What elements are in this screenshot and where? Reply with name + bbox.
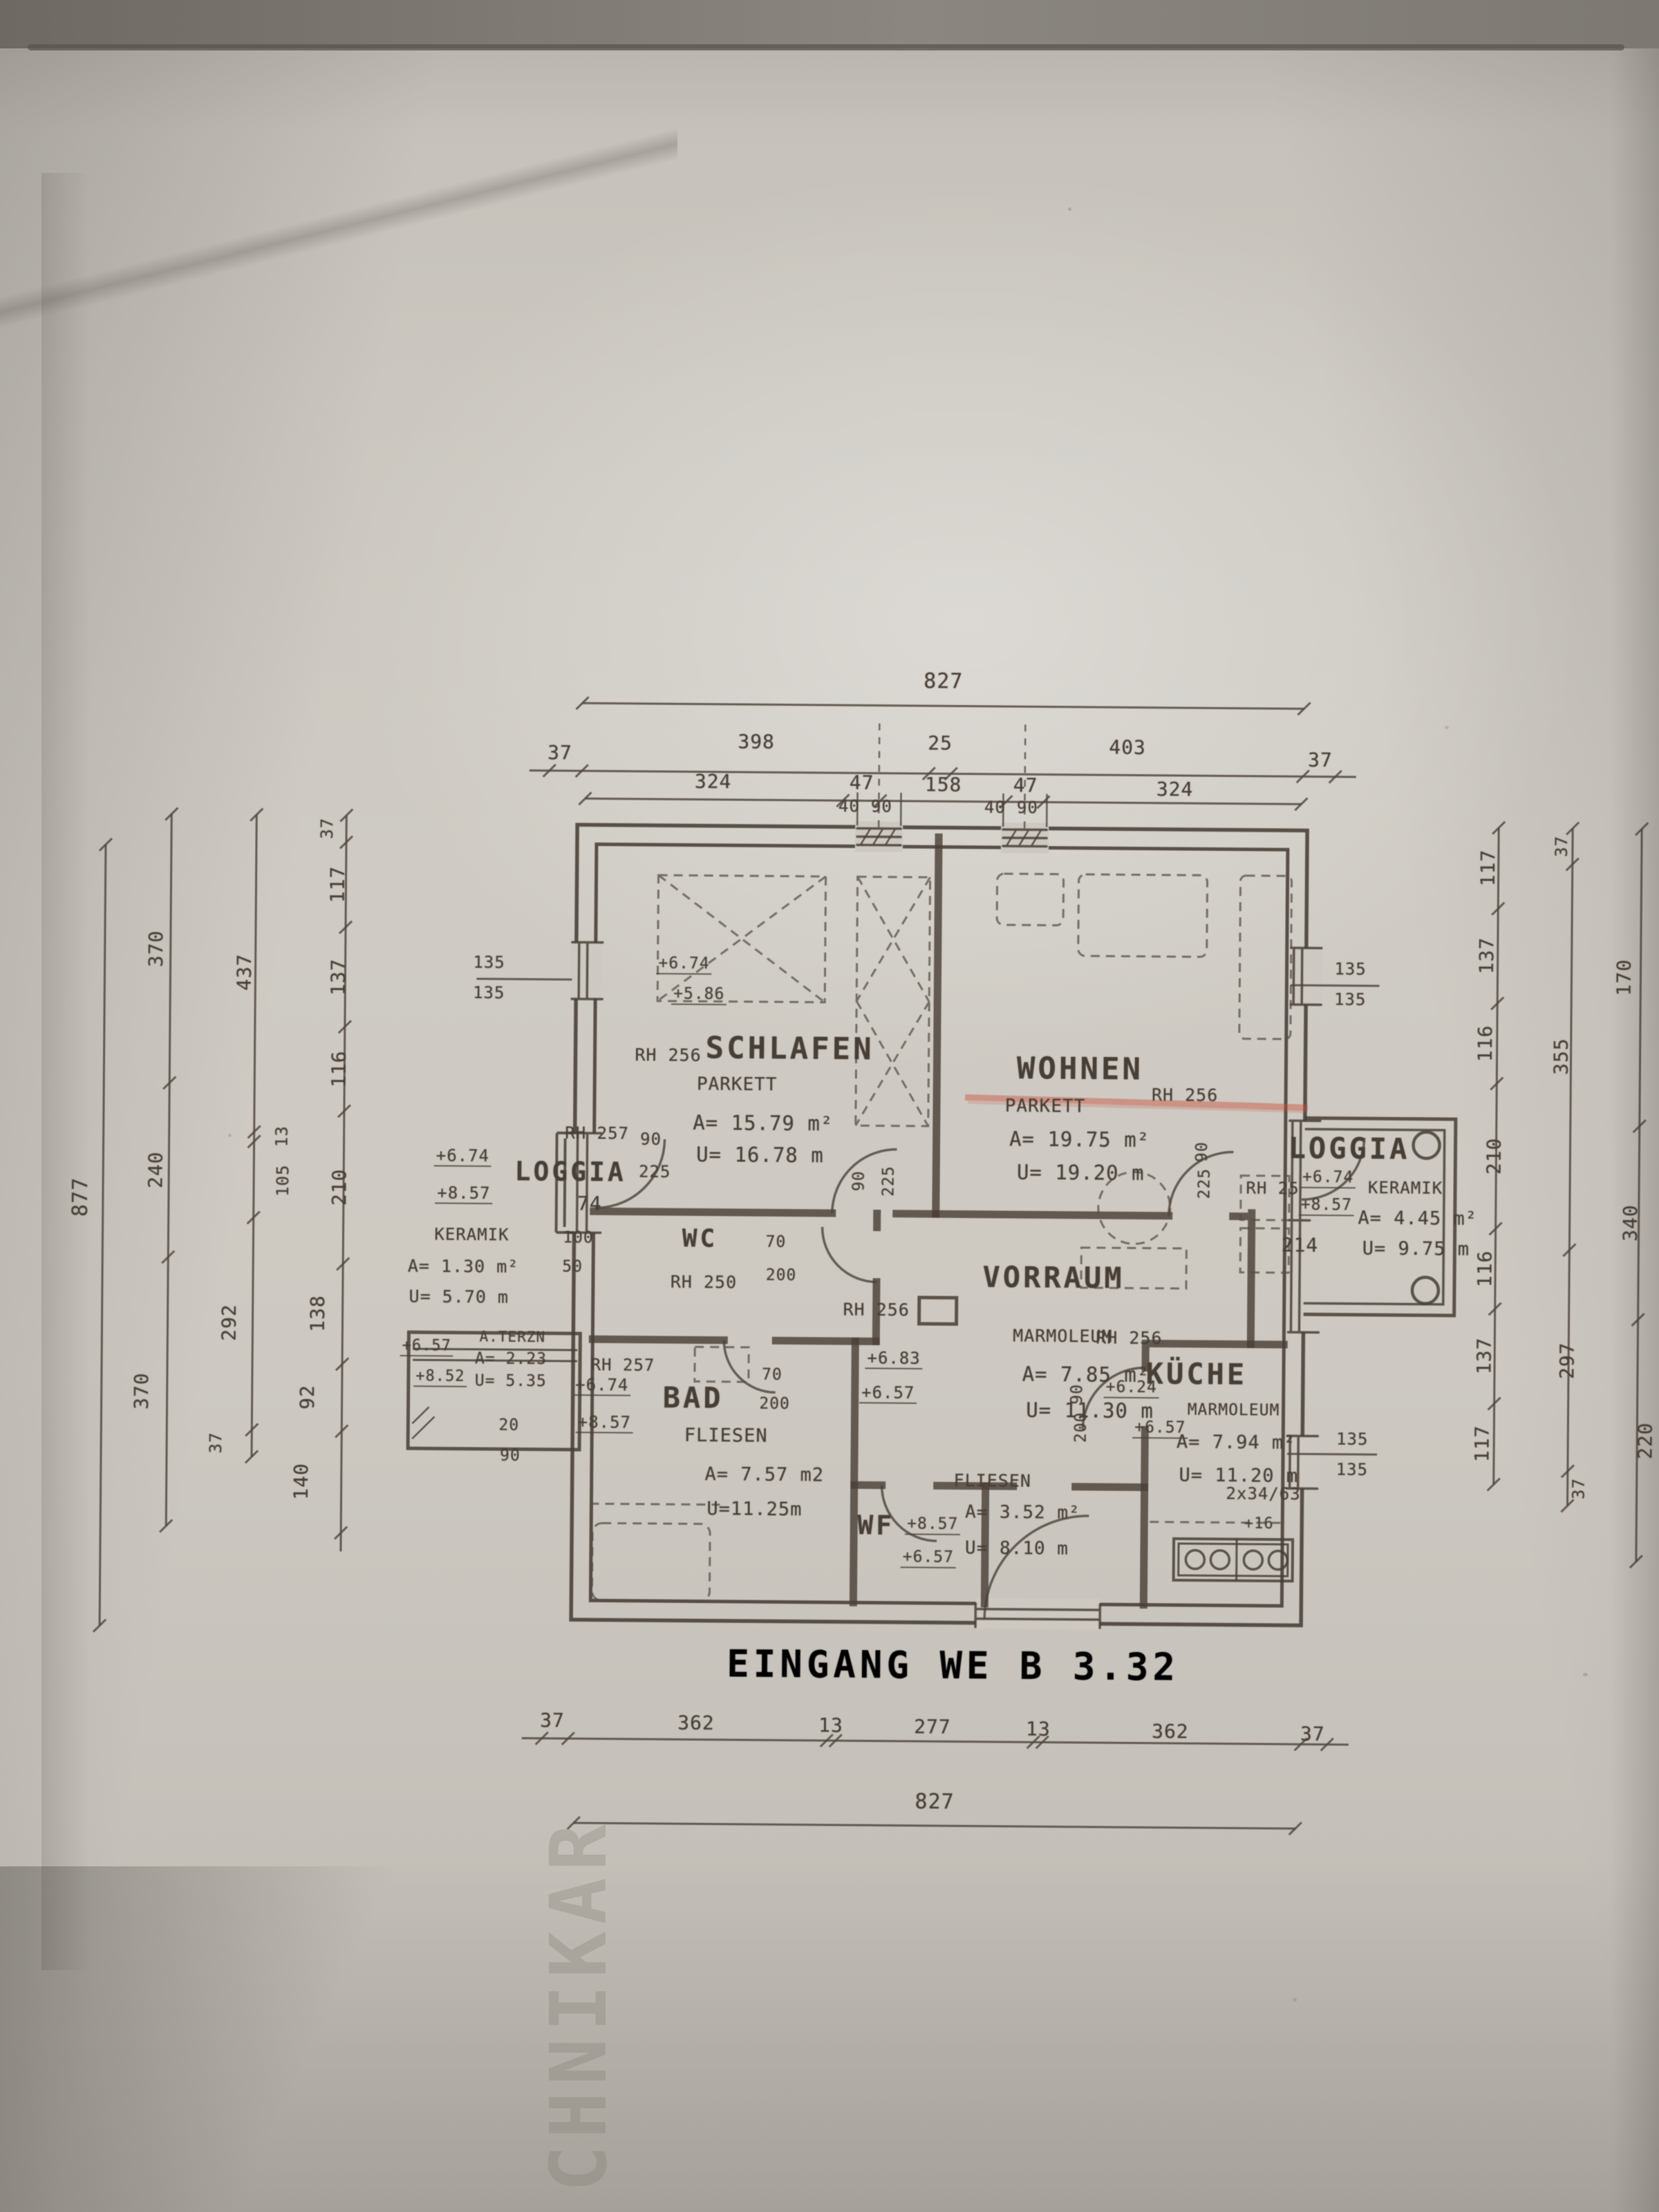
dim-right1-116b: 116: [1475, 1250, 1494, 1288]
loggia-right-width: 214: [1282, 1235, 1319, 1255]
dim-right3-340: 340: [1620, 1204, 1640, 1241]
ev-kueche-b: +6.57: [1132, 1420, 1188, 1439]
stove-burner: [1210, 1550, 1229, 1569]
dim-left3-292: 292: [219, 1304, 238, 1341]
dim-left4-37: 37: [319, 818, 335, 839]
schlafen-floor: PARKETT: [697, 1075, 778, 1094]
dim-left4-116: 116: [329, 1051, 348, 1088]
loggia-left-floor: KERAMIK: [434, 1226, 509, 1244]
schlafen-door-225: 225: [881, 1165, 897, 1197]
dim-left2-370b: 370: [132, 1372, 151, 1409]
entry-perimeter: U= 8.10 m: [965, 1539, 1069, 1558]
annex-90: 90: [500, 1448, 521, 1464]
loggia-left-door-90: 90: [640, 1131, 662, 1147]
wohnen-name: WOHNEN: [1017, 1053, 1143, 1085]
ev-vorraum-a: +6.83: [865, 1349, 922, 1369]
schlafen-door-90: 90: [852, 1170, 868, 1191]
dim-bot-362r: 362: [1152, 1722, 1189, 1741]
dim-bot-37l: 37: [540, 1711, 565, 1730]
ev-annex-b: +8.52: [413, 1369, 467, 1387]
dim-bot-362l: 362: [677, 1713, 715, 1732]
ev-entry-a: +8.57: [905, 1516, 960, 1535]
win-right-135b: 135: [1334, 991, 1367, 1008]
ev-loggia-right-a: +6.74: [1300, 1170, 1356, 1189]
dim-right3-220: 220: [1635, 1422, 1655, 1459]
win-left-135b: 135: [473, 984, 505, 1001]
dim-right1-117b: 117: [1472, 1425, 1492, 1463]
loggia-right-area: A= 4.45 m²: [1358, 1209, 1477, 1228]
wc-name: WC: [682, 1226, 718, 1251]
dim-top3-324r: 324: [1156, 780, 1194, 799]
floorplan-linework: [0, 0, 1659, 2212]
dim-bot-277: 277: [914, 1717, 951, 1736]
schlafen-perimeter: U= 16.78 m: [696, 1145, 824, 1165]
dim-right1-210: 210: [1484, 1138, 1503, 1175]
loggia-right-name: LOGGIA: [1288, 1134, 1410, 1163]
kueche-door-90: 90: [1069, 1384, 1085, 1405]
dim-right2-297: 297: [1557, 1342, 1577, 1379]
dim-right3-170: 170: [1614, 959, 1633, 996]
entry-area: A= 3.52 m²: [965, 1503, 1080, 1522]
dim-win1-40: 40: [838, 798, 860, 814]
dim-left4-210: 210: [330, 1169, 349, 1206]
annex-20: 20: [498, 1418, 519, 1434]
dim-top2-25: 25: [928, 733, 953, 753]
bad-rh: RH 257: [591, 1356, 655, 1374]
dim-top2-398: 398: [738, 732, 775, 751]
annex-name: A.TERZN: [480, 1330, 546, 1345]
dim-left1-877: 877: [71, 1177, 91, 1217]
ev-entry-b: +6.57: [901, 1549, 956, 1568]
wohnen-perimeter: U= 19.20 m: [1017, 1163, 1145, 1183]
win-kueche-135b: 135: [1336, 1461, 1369, 1478]
loggia-left-area: A= 1.30 m²: [408, 1257, 519, 1275]
ev-schlafen-b: +5.86: [671, 986, 727, 1006]
loggia-column: [1412, 1277, 1438, 1304]
bad-floor: FLIESEN: [684, 1426, 768, 1445]
win-right-135a: 135: [1334, 961, 1367, 977]
dim-left4-92: 92: [298, 1385, 317, 1409]
loggia-right-rh: RH 25: [1246, 1180, 1299, 1197]
bad-perimeter: U=11.25m: [706, 1499, 802, 1519]
kueche-window-note: 2x34/63: [1226, 1485, 1300, 1503]
dim-left3-13: 13: [274, 1125, 290, 1147]
ev-bad-b: +8.57: [576, 1414, 633, 1434]
dim-right2-355: 355: [1551, 1038, 1571, 1075]
loggia-left-rh: RH 257: [565, 1125, 629, 1142]
ev-kueche-a: +6.24: [1104, 1380, 1159, 1399]
dim-left4-138: 138: [308, 1295, 327, 1332]
wf-name: WF: [857, 1512, 894, 1538]
ev-loggia-left-a: +6.74: [434, 1147, 491, 1168]
scanned-floorplan-photo: 8273739825403373244715847324409040903736…: [0, 0, 1659, 2212]
entry-floor: FLIESEN: [953, 1472, 1031, 1490]
loggia-left-name: LOGGIA: [514, 1158, 626, 1185]
win-left-135a: 135: [473, 954, 505, 971]
dim-right1-137b: 137: [1474, 1338, 1494, 1375]
loggia-right-perimeter: U= 9.75 m: [1362, 1239, 1470, 1259]
wohnen-door-225: 225: [1197, 1168, 1212, 1199]
dim-bot-37r: 37: [1300, 1724, 1325, 1743]
stove-burner: [1244, 1550, 1262, 1569]
dim-right2-37b: 37: [1571, 1478, 1587, 1499]
kueche-perimeter: U= 11.20 m: [1179, 1465, 1298, 1485]
kueche-area: A= 7.94 m²: [1177, 1432, 1296, 1452]
wc-door-200: 200: [766, 1268, 797, 1284]
dim-left3-105: 105: [274, 1165, 291, 1197]
loggia-left-door-225: 225: [639, 1163, 671, 1180]
dim-right2-37a: 37: [1553, 836, 1570, 857]
loggia-column: [1413, 1132, 1439, 1159]
dim-right1-116a: 116: [1476, 1025, 1495, 1062]
kueche-counter-note: +16: [1244, 1517, 1274, 1532]
stove-burner: [1185, 1550, 1204, 1569]
entrance-title: EINGANG WE B 3.32: [727, 1642, 1179, 1689]
stove-burner: [1268, 1551, 1287, 1570]
wall-openings: [565, 819, 1324, 1631]
bad-door-70: 70: [762, 1367, 782, 1383]
dim-bot-13r: 13: [1026, 1719, 1051, 1738]
dim-top3-47r: 47: [1013, 776, 1038, 795]
dim-top3-158: 158: [925, 775, 962, 794]
dim-top2-37l: 37: [547, 743, 572, 762]
ev-annex-a: +6.57: [400, 1338, 453, 1357]
ev-schlafen-a: +6.74: [656, 956, 711, 975]
schlafen-name: SCHLAFEN: [706, 1033, 874, 1065]
ev-loggia-right-b: +8.57: [1299, 1197, 1354, 1217]
dim-left3-437: 437: [234, 953, 254, 991]
wc-door-70: 70: [766, 1235, 787, 1250]
floorplan-drawing: 8273739825403373244715847324409040903736…: [0, 0, 1659, 2212]
schlafen-rh: RH 256: [635, 1046, 702, 1064]
dim-left4-117: 117: [328, 866, 347, 903]
dim-left3-37: 37: [207, 1432, 224, 1453]
loggia-left-100: 100: [563, 1230, 594, 1246]
window-sills: [567, 826, 1322, 1629]
kueche-floor: MARMOLEUM: [1188, 1403, 1280, 1419]
wc-rh: RH 250: [671, 1273, 738, 1291]
dim-win2-40: 40: [984, 799, 1006, 816]
dim-top-total: 827: [924, 671, 963, 692]
vorraum-rh: RH 256: [843, 1301, 910, 1319]
wohnen-rh: RH 256: [1152, 1086, 1219, 1104]
dim-right1-137a: 137: [1477, 937, 1497, 975]
ev-loggia-left-b: +8.57: [435, 1185, 492, 1205]
wohnen-door-90: 90: [1194, 1141, 1210, 1162]
schlafen-area: A= 15.79 m²: [693, 1113, 833, 1134]
vorraum-symbol: [919, 1297, 957, 1324]
wohnen-area: A= 19.75 m²: [1009, 1130, 1150, 1151]
dim-right1-117a: 117: [1479, 850, 1498, 887]
bad-area: A= 7.57 m2: [704, 1465, 824, 1484]
loggia-left-width: 74: [577, 1194, 602, 1213]
dim-bot-13l: 13: [818, 1716, 843, 1735]
dim-win2-90: 90: [1017, 799, 1038, 816]
dim-left2-240: 240: [146, 1151, 165, 1188]
loggia-right-floor: KERAMIK: [1368, 1179, 1443, 1197]
dim-left4-140: 140: [292, 1463, 311, 1500]
win-kueche-135a: 135: [1336, 1431, 1369, 1447]
dim-top2-37r: 37: [1308, 750, 1333, 769]
annex-area: A= 2.23: [475, 1351, 547, 1367]
ev-bad-a: +6.74: [573, 1376, 630, 1396]
dim-top3-47l: 47: [850, 773, 874, 792]
interior-walls: [590, 834, 1288, 1606]
kueche-door-200: 200: [1074, 1412, 1089, 1443]
loggia-left-perimeter: U= 5.70 m: [409, 1288, 509, 1306]
dim-left2-370a: 370: [147, 930, 166, 967]
dim-bot-total: 827: [915, 1792, 954, 1812]
kueche-name: KÜCHE: [1146, 1360, 1248, 1389]
kueche-rh: RH 256: [1096, 1329, 1163, 1347]
annex-perimeter: U= 5.35: [475, 1373, 547, 1389]
dim-left4-137: 137: [328, 959, 348, 996]
bad-door-200: 200: [759, 1396, 790, 1412]
watermark-text: CHNIKAR: [534, 1817, 624, 2192]
dim-top3-324l: 324: [695, 771, 732, 791]
dim-win1-90: 90: [871, 798, 892, 814]
loggia-left-50: 50: [562, 1259, 583, 1275]
ev-vorraum-b: +6.57: [859, 1384, 917, 1404]
dim-top2-403: 403: [1109, 738, 1146, 757]
vorraum-name: VORRAUM: [982, 1263, 1124, 1293]
wohnen-floor: PARKETT: [1005, 1097, 1086, 1116]
bad-name: BAD: [663, 1383, 724, 1413]
